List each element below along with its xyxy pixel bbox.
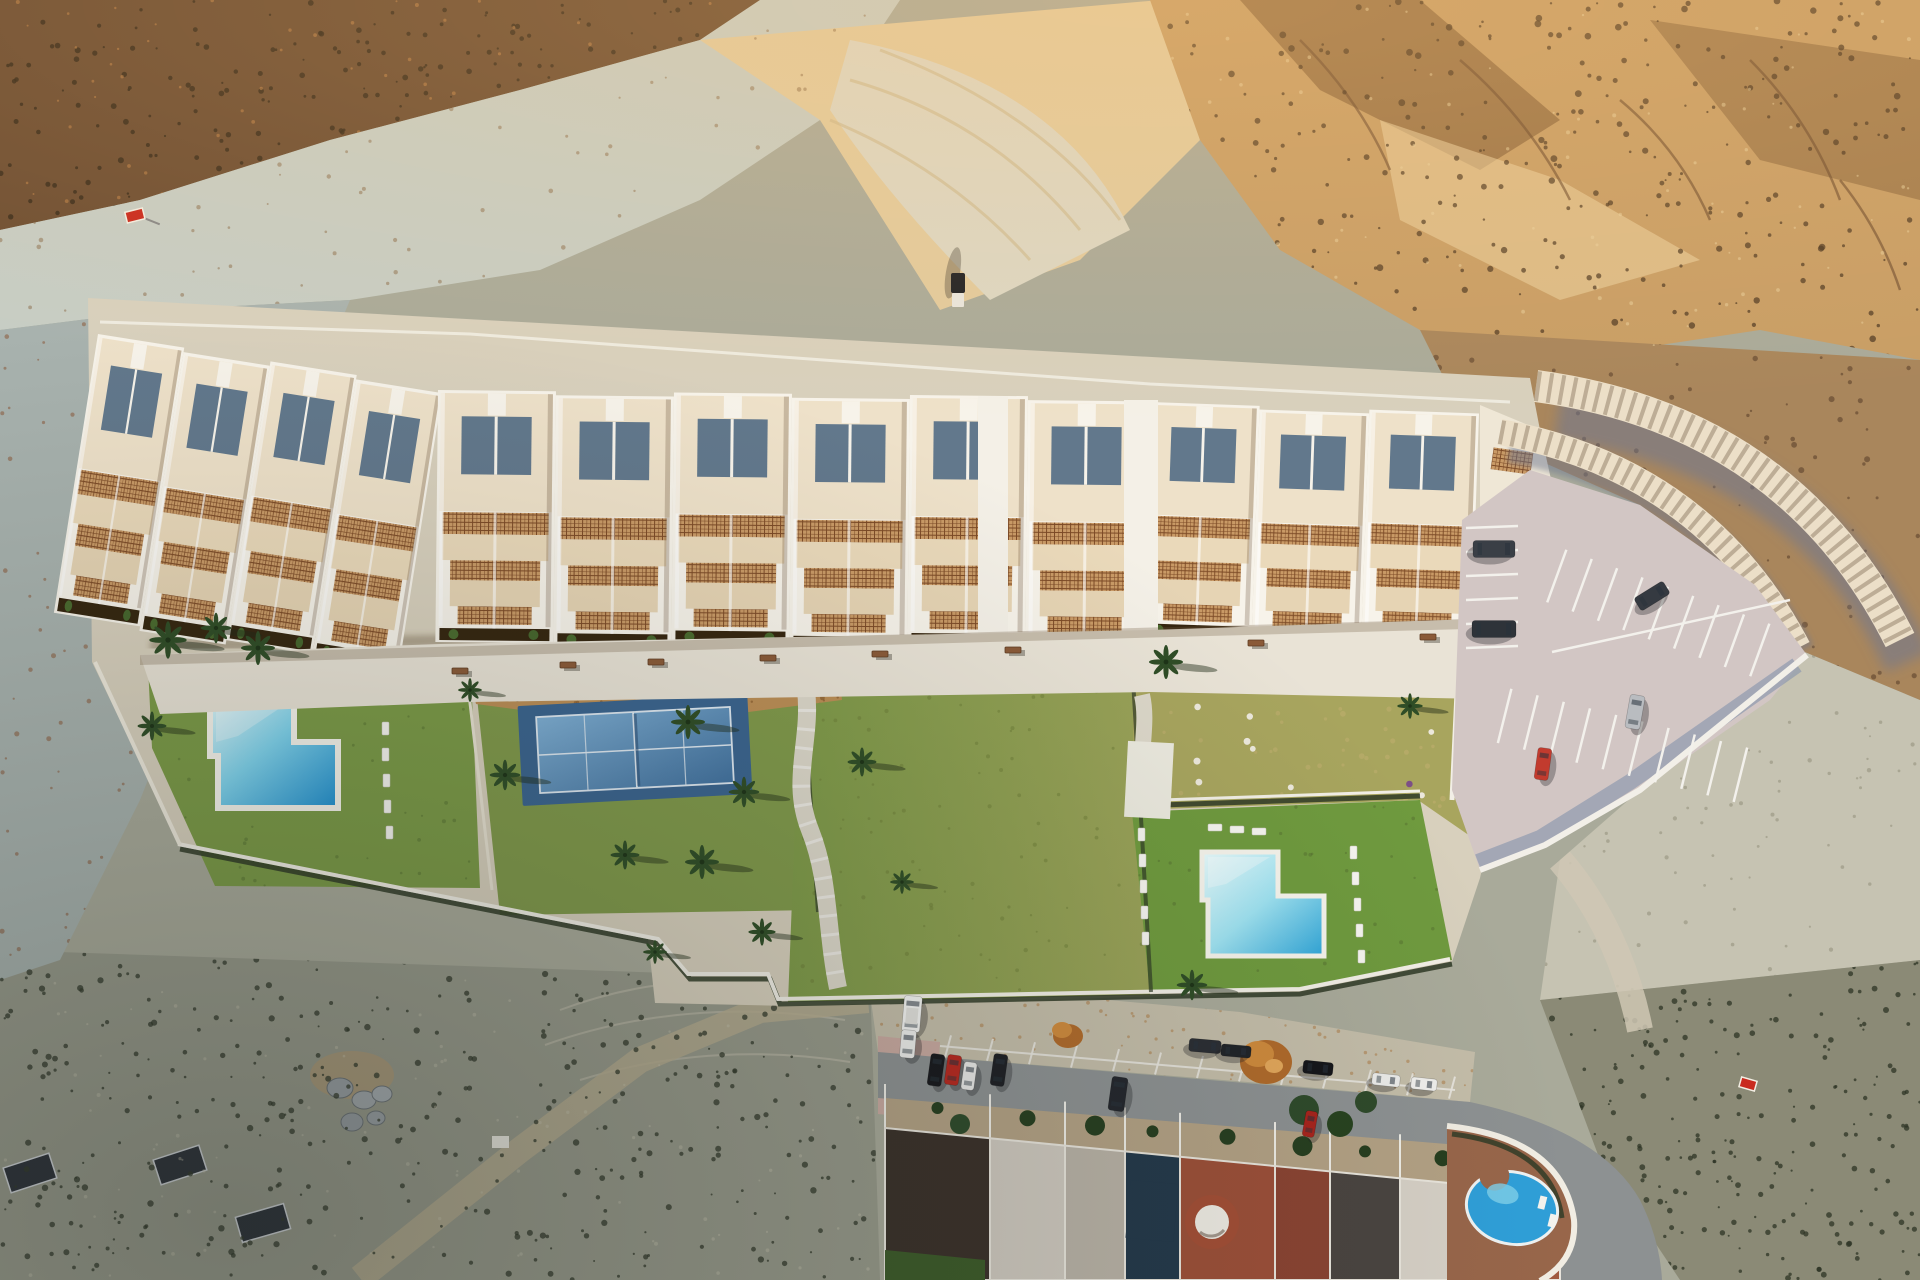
aerial-photo-stage: [0, 0, 1920, 1280]
aerial-render: [0, 0, 1920, 1280]
cool-shadow: [0, 0, 1920, 1280]
light-overlays: [0, 0, 1920, 1280]
